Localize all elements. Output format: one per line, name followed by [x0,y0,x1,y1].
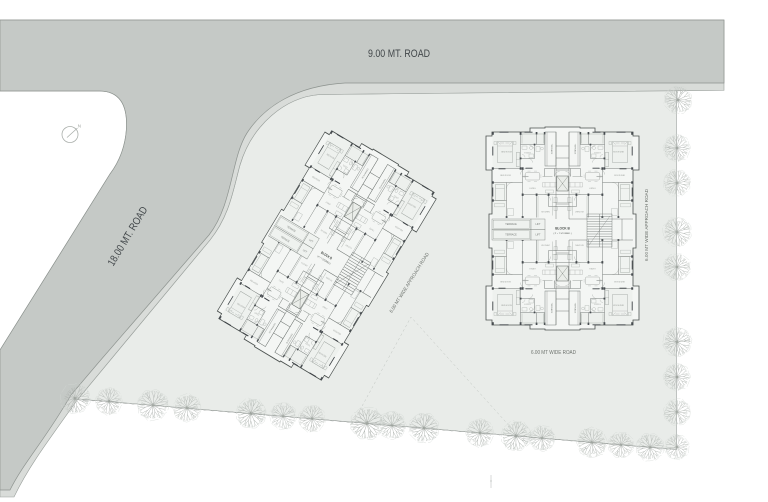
svg-text:6.00 MT WIDE APPROACH ROAD: 6.00 MT WIDE APPROACH ROAD [644,189,650,261]
svg-text:9.00 MT. ROAD: 9.00 MT. ROAD [368,48,430,60]
svg-text:N: N [78,124,81,129]
svg-text:6.00 MT WIDE ROAD: 6.00 MT WIDE ROAD [531,350,576,356]
